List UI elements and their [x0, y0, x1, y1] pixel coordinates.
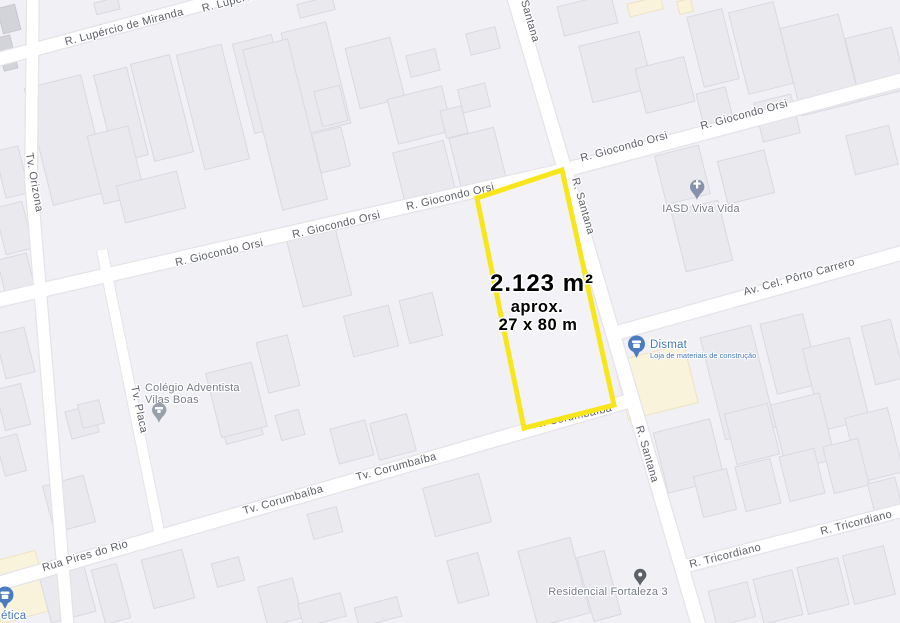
poi-residencial-label[interactable]: Residencial Fortaleza 3	[548, 586, 668, 598]
poi-iasd-label[interactable]: IASD Viva Vida	[662, 203, 740, 215]
poi-dismat-label[interactable]: Dismat	[650, 339, 688, 351]
poi-estetica-label[interactable]: ética	[1, 610, 27, 622]
map-canvas[interactable]: R. Lupércio de Miranda R. Lupércio de Mi…	[0, 0, 900, 623]
parcel-approx-label: aprox.	[511, 298, 564, 316]
poi-colegio-label-line2[interactable]: Vilas Boas	[145, 394, 199, 406]
buildings-layer	[0, 0, 900, 623]
poi-colegio-label-line1[interactable]: Colégio Adventista	[145, 382, 240, 394]
poi-dismat-subtitle[interactable]: Loja de materiais de construção	[650, 351, 756, 360]
parcel-area-label: 2.123 m²	[490, 270, 594, 297]
parcel-dimensions-label: 27 x 80 m	[499, 316, 578, 334]
residential-pin-icon[interactable]	[634, 569, 646, 586]
parcel-highlight: 2.123 m² aprox. 27 x 80 m	[477, 170, 614, 428]
street-label-lupercio: R. Lupércio de Miranda	[64, 6, 186, 48]
